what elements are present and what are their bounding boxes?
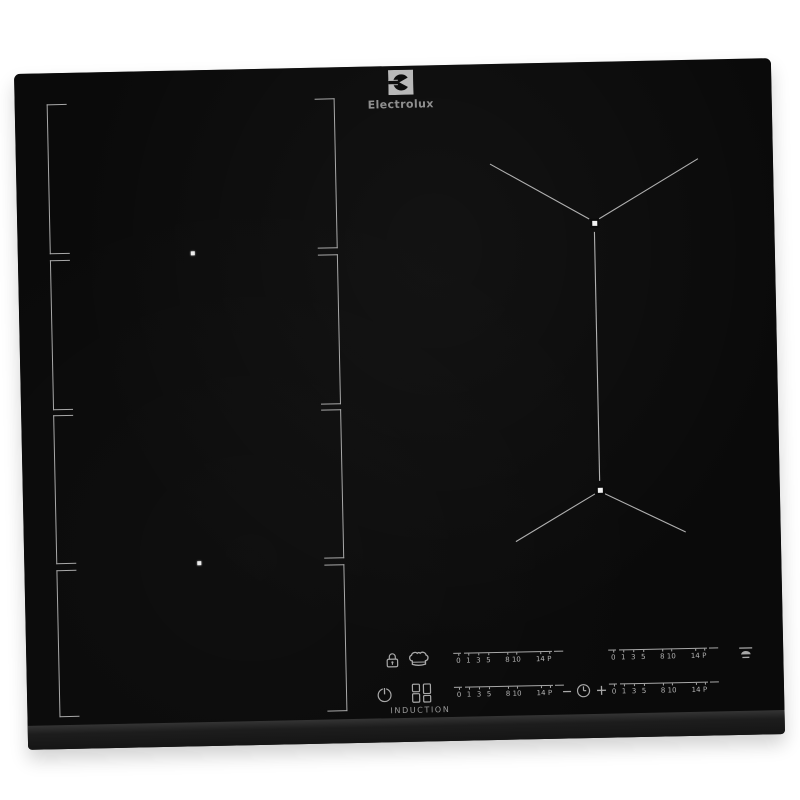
power-scale-tick bbox=[541, 686, 542, 688]
flex-zone-segment-2 bbox=[50, 254, 341, 410]
power-scale-tick bbox=[468, 654, 469, 656]
power-scale-label-10: 10 bbox=[510, 655, 522, 664]
power-scale-tick bbox=[489, 687, 490, 689]
power-scale-tick bbox=[624, 684, 625, 686]
power-scale-left-front[interactable]: 013581014P bbox=[453, 651, 563, 667]
zone-center-dot bbox=[598, 488, 603, 493]
power-scale-label-P: P bbox=[543, 655, 555, 664]
zone-center-dot bbox=[197, 561, 201, 565]
power-scale-tick bbox=[549, 652, 550, 654]
flex-zone-segment-3 bbox=[53, 409, 344, 564]
power-scale-tick bbox=[488, 653, 489, 655]
flex-zone-segment-1 bbox=[47, 98, 338, 254]
power-scale-tick bbox=[478, 653, 479, 655]
power-scale-tick bbox=[508, 687, 509, 689]
power-scale-label-P: P bbox=[698, 652, 710, 661]
brand-name: Electrolux bbox=[351, 97, 451, 112]
power-scale-tick bbox=[643, 650, 644, 652]
segment-bracket-left bbox=[50, 260, 73, 410]
power-scale-label-5: 5 bbox=[482, 656, 494, 665]
power-scale-right-front[interactable]: 013581014P bbox=[608, 647, 718, 663]
segment-bracket-left bbox=[53, 415, 76, 564]
power-scale-label-P: P bbox=[544, 689, 556, 698]
power-scale-label-10: 10 bbox=[511, 689, 523, 698]
power-scale-tick bbox=[705, 683, 706, 685]
power-scale-tick bbox=[633, 650, 634, 652]
product-photo: Electrolux bbox=[0, 0, 800, 800]
power-scale-tick bbox=[550, 686, 551, 688]
power-scale-tick bbox=[671, 649, 672, 651]
power-scale-tick bbox=[479, 687, 480, 689]
segment-bracket-right bbox=[321, 409, 344, 558]
power-scale-label-5: 5 bbox=[637, 653, 649, 662]
timer-clock-icon[interactable] bbox=[576, 683, 591, 698]
power-scale-tick bbox=[695, 649, 696, 651]
power-scale-tick bbox=[459, 688, 460, 690]
power-scale-tick bbox=[623, 650, 624, 652]
power-scale-tick bbox=[540, 652, 541, 654]
glass-surface: Electrolux bbox=[14, 58, 784, 726]
flex-zone-segment-4 bbox=[56, 564, 347, 717]
power-scale-label-5: 5 bbox=[638, 687, 650, 696]
segment-bracket-left bbox=[56, 570, 79, 717]
induction-hob: Electrolux bbox=[14, 58, 785, 750]
power-scale-label-5: 5 bbox=[483, 690, 495, 699]
power-scale-tick bbox=[704, 649, 705, 651]
segment-bracket-right bbox=[315, 98, 338, 248]
power-scale-tick bbox=[614, 685, 615, 687]
power-icon[interactable] bbox=[376, 686, 393, 703]
timer-plus-button[interactable] bbox=[596, 685, 607, 696]
power-scale-label-10: 10 bbox=[666, 686, 678, 695]
segment-bracket-right bbox=[324, 564, 347, 711]
power-scale-right-rear[interactable]: 013581014P bbox=[609, 681, 719, 697]
zone-center-dot bbox=[592, 221, 597, 226]
power-scale-tick bbox=[469, 688, 470, 690]
power-scale-label-10: 10 bbox=[665, 652, 677, 661]
hob2hood-icon[interactable] bbox=[737, 646, 754, 661]
power-scale-tick bbox=[662, 650, 663, 652]
power-scale-tick bbox=[613, 651, 614, 653]
power-scale-tick bbox=[517, 687, 518, 689]
power-scale-tick bbox=[644, 684, 645, 686]
flex-zones-icon[interactable] bbox=[411, 682, 432, 703]
power-scale-label-P: P bbox=[699, 686, 711, 695]
induction-label: INDUCTION bbox=[371, 705, 469, 716]
power-scale-tick bbox=[507, 653, 508, 655]
zone-center-dot bbox=[191, 251, 195, 255]
right-zone-markers bbox=[471, 149, 725, 564]
power-scale-tick bbox=[634, 684, 635, 686]
chef-hat-icon[interactable] bbox=[407, 649, 430, 668]
lock-icon[interactable] bbox=[385, 652, 399, 668]
electrolux-mark-icon bbox=[388, 70, 414, 96]
power-scale-tick bbox=[516, 653, 517, 655]
power-scale-tick bbox=[696, 683, 697, 685]
brand-logo: Electrolux bbox=[350, 69, 451, 112]
segment-bracket-left bbox=[47, 104, 70, 254]
segment-bracket-right bbox=[318, 254, 341, 404]
power-scale-tick bbox=[663, 684, 664, 686]
power-scale-tick bbox=[458, 654, 459, 656]
power-scale-tick bbox=[672, 683, 673, 685]
power-scale-left-rear[interactable]: 013581014P bbox=[454, 685, 564, 701]
